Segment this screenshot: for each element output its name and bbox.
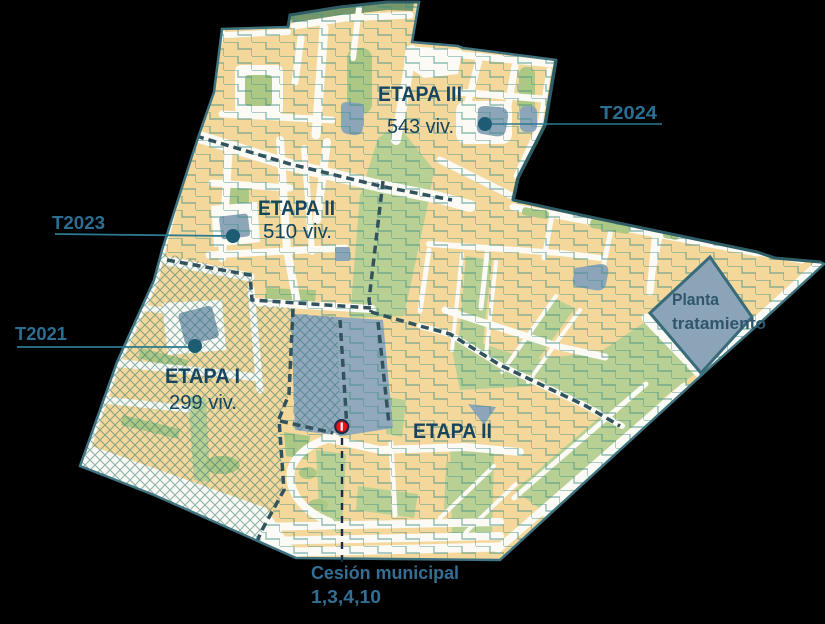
svg-text:ETAPA III: ETAPA III bbox=[378, 83, 462, 106]
svg-text:543 viv.: 543 viv. bbox=[387, 116, 454, 138]
svg-text:299 viv.: 299 viv. bbox=[169, 392, 237, 414]
svg-text:510 viv.: 510 viv. bbox=[263, 221, 332, 243]
svg-text:ETAPA II: ETAPA II bbox=[258, 197, 335, 220]
svg-text:1,3,4,10: 1,3,4,10 bbox=[311, 587, 381, 607]
svg-text:ETAPA I: ETAPA I bbox=[165, 365, 240, 388]
svg-text:Cesión municipal: Cesión municipal bbox=[311, 563, 459, 583]
svg-text:Planta: Planta bbox=[672, 290, 719, 309]
svg-text:T2021: T2021 bbox=[15, 324, 67, 344]
svg-text:ETAPA II: ETAPA II bbox=[413, 420, 492, 443]
svg-text:tratamiento: tratamiento bbox=[672, 314, 766, 333]
svg-text:T2024: T2024 bbox=[600, 103, 657, 123]
svg-text:T2023: T2023 bbox=[52, 213, 105, 233]
